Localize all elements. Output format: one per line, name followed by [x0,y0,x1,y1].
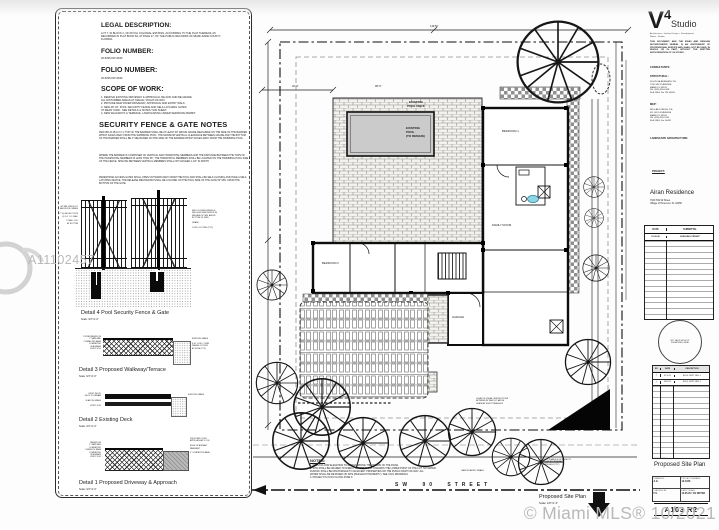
mls-listing-number-watermark: A11102457 [28,253,95,267]
dim-label-a: 40'-0" [292,85,299,88]
tree-icon [256,362,297,403]
detail2-section [105,394,171,402]
watermark-logo-icon [0,244,42,292]
paver-driveway [300,302,428,398]
folio-title-2: FOLIO NUMBER: [101,67,157,76]
landscape-label: LANDSCAPE ARCHITECTURE: [650,137,688,140]
revision-empty-rows [653,386,709,459]
d3-annotation-right: EXISTING GRADE 6"x6" CONC. CURB WHERE OC… [192,338,232,350]
d2-annotation-left: EXIST. WOOD DECK TO REMAIN SLAB ON GRADE… [67,393,101,407]
submittal-col-desc: SUBMITTAL [667,228,713,231]
project-name: Airan Residence [650,190,694,198]
tree-icon [338,418,389,469]
legal-title: LEGAL DESCRIPTION: [101,22,171,30]
tree-icon [294,379,350,435]
d4-annotation-right: SELF-CLOSING HINGES & SELF-LATCHING DEVI… [192,210,236,229]
detail3-section [103,338,173,356]
revision-col-desc: DESCRIPTION [675,368,709,370]
room-label-2: BEDROOM 2 [322,262,339,265]
info-value: 10.05.20 / AS NOTED [682,492,709,495]
room-label-3: FAMILY ROOM [492,224,511,227]
structural-info: FULVIO ALBERGHINI, P.E. 7700 SW 57 AVENU… [650,81,712,95]
security-p1: PER FBC-R 454.2.17.1: TOP OF THE BARRIER… [99,131,249,140]
seal-text: NOT VALID WITHOUT SIGNATURE & SEAL [670,340,689,345]
project-address: 7020 SW 90 Street Village of Pinecrest, … [650,199,712,205]
revision-triangle-icon: △ [653,381,661,384]
info-value: 19-1026 [682,480,709,483]
swale-label: LANDSCAPED SWALE [461,470,484,473]
dim-label-top: 149.50' [430,25,438,28]
submittal-table: DATE SUBMITTAL 10.05.20 BUILDING PERMIT [644,225,714,320]
centerline-arrow-icon [253,485,266,495]
street-label: SW 90 STREET [395,482,491,488]
detail1-scale: Scale: 3/4"=1'-0" [79,488,97,491]
logo-studio: Studio [671,19,697,30]
submittal-empty-rows [645,241,713,319]
d1-annotation-left: PAVERS ON 1" SAND BED COMPACTED LIMEROCK… [67,442,101,459]
pool-label: EXISTING POOL (TO REMAIN) [406,127,425,138]
copyright-note: THIS DOCUMENT, AND THE IDEAS AND DESIGNS… [650,41,710,55]
revision-date: 03.02.21 [661,381,675,383]
site-plan-sheet: { "watermarks": { "listing_number": "A11… [0,0,719,530]
security-p3: PEDESTRIAN ACCESS GATES SHALL OPEN OUTWA… [99,176,249,185]
info-value: A.G. [654,480,680,483]
detail3-label: Detail 3 Proposed Walkway/Terrace [79,367,166,374]
fence-elevation-gate [131,198,187,268]
pool-deck-label: EXISTING POOL DECK [398,101,434,109]
security-title: SECURITY FENCE & GATE NOTES [99,120,227,129]
stairs [438,253,466,279]
submittal-desc: BUILDING PERMIT [667,236,713,239]
studio-tagline: Architecture + Interior Design + Develop… [650,33,712,39]
revision-desc: BLDG. DEPT. REV. 1 [675,375,709,377]
folio-title-1: FOLIO NUMBER: [101,48,153,56]
submittal-col-date: DATE [645,228,667,231]
structural-label: STRUCTURAL: [650,75,669,78]
notes-body: 1. FINISH FLOOR ELEVATION TO REMAIN ABOV… [310,464,470,479]
architect-seal: NOT VALID WITHOUT SIGNATURE & SEAL [658,320,702,364]
detail2-scale: Scale: 3/4"=1'-0" [79,425,97,428]
tree-icon [449,409,496,456]
title-block: V 4 Studio Architecture + Interior Desig… [637,0,719,530]
tree-icon [257,270,287,300]
folio-value-1: 20-5035-007-0630 [101,57,122,60]
detail1-label: Detail 1 Proposed Driveway & Approach [79,480,177,487]
room-label-4: GARAGE [452,316,464,319]
room-label-1: BEDROOM 1 [502,130,519,133]
fence-ground [75,268,191,307]
dim-label-b: 98'-0" [375,85,382,88]
v4-studio-logo: V 4 Studio [648,6,714,32]
sight-note-2: KEEP TRIANGLE OF VISIBILITY CLEAR AT DRI… [543,459,571,466]
revision-date: 01.15.21 [661,375,675,377]
legal-body: LOT 7, IN BLOCK 2, OF ROYAL COLONIAL EST… [101,32,223,42]
detail2-label: Detail 2 Existing Deck [79,417,133,424]
submittal-date: 10.05.20 [645,236,667,239]
revision-col-no: NO. [653,368,661,370]
d2-annotation-right: EXISTING GRADE [188,394,228,396]
logo-v: V [648,6,663,36]
tree-icon [400,416,451,467]
project-label: PROJECT: [652,170,665,173]
folio-value-2: 20-5035-007-0630 [101,77,122,80]
scope-title: SCOPE OF WORK: [101,86,164,95]
detail1-section [105,448,163,471]
revision-col-date: DATE [661,368,675,370]
detail4-label: Detail 4 Pool Security Fence & Gate [81,310,169,317]
revision-triangle-icon: △ [653,374,661,377]
consultants-label: CONSULTANTS: [650,66,670,69]
tree-icon [585,209,604,228]
detail3-scale: Scale: 3/4"=1'-0" [79,375,97,378]
revision-table: NO. DATE DESCRIPTION △ 01.15.21 BLDG. DE… [652,365,710,459]
bath-fixture [528,195,539,202]
d1-annotation-right: PROPOSED CONC. APPROACH AT R.O.W. EDGE O… [190,438,232,455]
sheet-title-label: SHEET TITLE: [654,458,668,461]
sight-note: CLEAR OF VISUAL OBSTRUCTIONS BETWEEN 30"… [476,398,508,405]
security-p2: WHERE THE BARRIER IS COMPOSED OF VERTICA… [99,154,249,163]
detail2-grade [171,397,187,417]
drawing-info-grid: DRAWN BY: A.G. PROJECT NUMBER: 19-1026 C… [652,476,710,502]
info-value: F.V. [654,492,680,495]
tree-icon [565,339,610,384]
mep-label: MEP: [650,103,656,106]
slope-marker [548,389,610,430]
tree-icon [584,177,605,198]
notes-title: NOTES: [310,458,325,463]
tree-icon [583,255,609,281]
d4-annotation-left: 48" MIN. FENCE HT. ABOVE FIN. GRADE 2" S… [55,206,78,225]
sheet-title: Proposed Site Plan [654,462,705,470]
plan-title: Proposed Site Plan [539,494,586,501]
d3-annotation-left: STONE PAVERS ON 1" SAND BED COMPACTED BA… [67,336,101,350]
mep-info: BID-LAB STRUSS, P.E. 411 SW 142 AVENUE M… [650,109,712,123]
scope-items: 1. REMOVE EXISTING DRIVEWAY & APPROACH. … [101,96,249,115]
submittal-row: 10.05.20 BUILDING PERMIT [645,234,713,241]
mls-credit-watermark: © Miami MLS® 10/2021 [524,503,716,524]
detail4-scale: Scale: 3/4"=1'-0" [81,318,99,321]
revision-desc: BLDG. DEPT. REV. 2 [675,381,709,383]
detail3-curb [173,341,191,365]
detail1-approach [163,451,189,471]
